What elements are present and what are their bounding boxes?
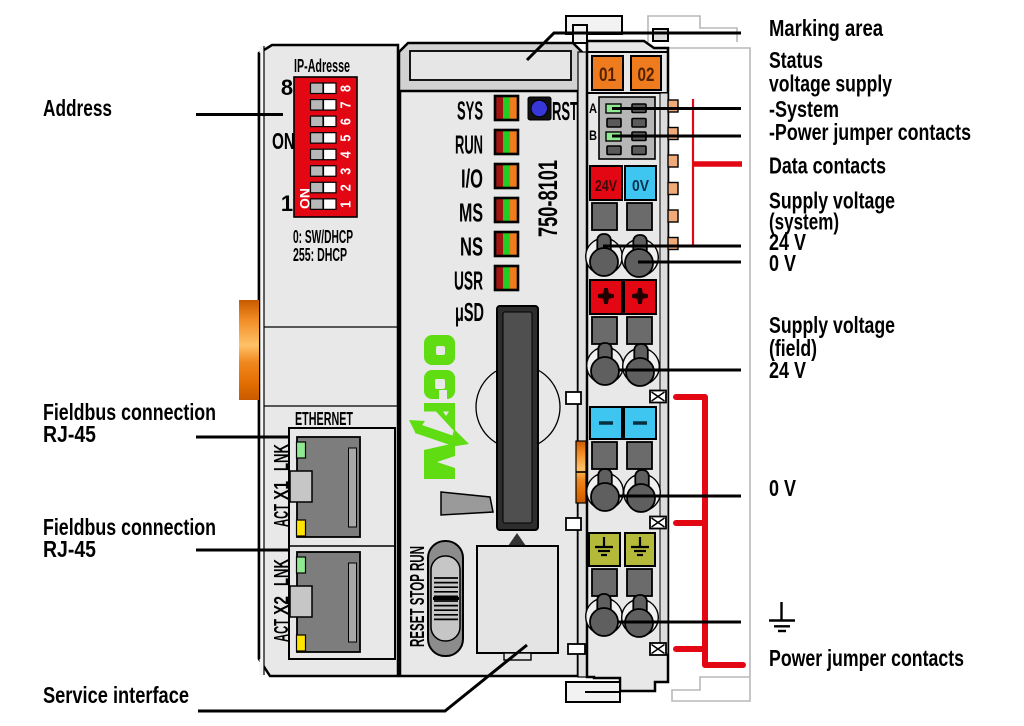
svg-text:IP-Adresse: IP-Adresse (294, 56, 350, 76)
svg-text:1: 1 (339, 201, 355, 208)
svg-text:LNK: LNK (271, 559, 293, 586)
svg-text:ON: ON (272, 128, 295, 154)
svg-text:Data contacts: Data contacts (769, 153, 886, 179)
svg-text:-Power jumper contacts: -Power jumper contacts (769, 119, 971, 145)
svg-text:Service interface: Service interface (43, 682, 189, 708)
svg-text:01: 01 (599, 64, 616, 86)
svg-text:RJ-45: RJ-45 (43, 536, 96, 562)
svg-text:ACT: ACT (271, 619, 293, 642)
svg-text:ETHERNET: ETHERNET (295, 408, 353, 429)
svg-text:0 V: 0 V (769, 475, 797, 501)
svg-text:8: 8 (339, 85, 355, 92)
svg-text:7: 7 (339, 102, 355, 109)
svg-text:USR: USR (454, 266, 483, 296)
svg-text:Status: Status (769, 47, 823, 73)
svg-text:SYS: SYS (457, 96, 483, 126)
svg-text:0V: 0V (632, 178, 649, 195)
svg-text:8: 8 (281, 75, 293, 100)
svg-text:Address: Address (43, 95, 112, 121)
svg-text:A: A (589, 101, 597, 116)
svg-text:24V: 24V (595, 178, 617, 195)
svg-text:255: DHCP: 255: DHCP (293, 245, 347, 265)
svg-text:02: 02 (638, 64, 655, 86)
svg-text:X2: X2 (271, 596, 293, 615)
svg-text:ACT: ACT (271, 504, 293, 527)
svg-text:RST: RST (552, 96, 578, 126)
svg-text:24 V: 24 V (769, 357, 807, 383)
svg-text:I/O: I/O (461, 164, 483, 194)
svg-text:4: 4 (339, 151, 355, 158)
svg-text:μSD: μSD (455, 297, 484, 327)
svg-text:X1: X1 (271, 481, 293, 500)
svg-text:2: 2 (339, 184, 355, 191)
svg-text:0 V: 0 V (769, 250, 797, 276)
svg-text:voltage supply: voltage supply (769, 71, 892, 97)
svg-text:RUN: RUN (455, 130, 483, 160)
svg-text:B: B (589, 128, 597, 143)
svg-text:0: SW/DHCP: 0: SW/DHCP (293, 227, 353, 247)
svg-text:NS: NS (460, 232, 483, 262)
svg-text:3: 3 (339, 168, 355, 175)
svg-text:6: 6 (339, 118, 355, 125)
svg-text:Marking area: Marking area (769, 15, 883, 41)
svg-text:RJ-45: RJ-45 (43, 421, 96, 447)
svg-text:1: 1 (281, 191, 293, 216)
svg-text:750-8101: 750-8101 (533, 160, 563, 237)
svg-text:Power jumper contacts: Power jumper contacts (769, 645, 964, 671)
svg-text:RESET STOP RUN: RESET STOP RUN (407, 546, 429, 647)
svg-text:5: 5 (339, 135, 355, 142)
svg-text:LNK: LNK (271, 444, 293, 471)
svg-text:ON: ON (297, 188, 313, 209)
svg-text:MS: MS (459, 198, 483, 228)
